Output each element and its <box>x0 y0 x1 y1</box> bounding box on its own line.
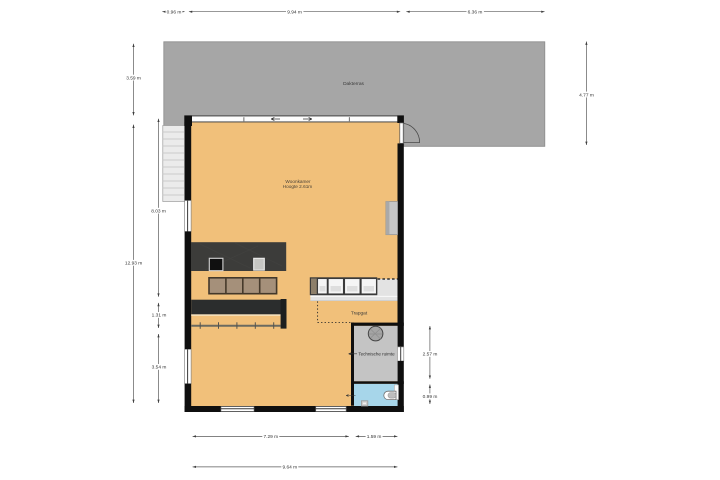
svg-text:2.57 m: 2.57 m <box>423 352 438 358</box>
svg-text:12.93 m: 12.93 m <box>125 261 142 267</box>
svg-text:6.36 m: 6.36 m <box>468 10 483 16</box>
svg-text:Dakterras: Dakterras <box>343 81 364 87</box>
svg-text:7.29 m: 7.29 m <box>263 434 278 440</box>
svg-text:1.59 m: 1.59 m <box>367 434 382 440</box>
svg-text:3.59 m: 3.59 m <box>126 75 141 81</box>
svg-text:8.03 m: 8.03 m <box>151 209 166 215</box>
svg-text:9.64 m: 9.64 m <box>282 465 297 471</box>
svg-text:1.31 m: 1.31 m <box>152 313 167 319</box>
svg-text:Trapgat: Trapgat <box>351 310 368 316</box>
svg-text:0.96 m: 0.96 m <box>167 10 182 16</box>
svg-text:9.94 m: 9.94 m <box>287 10 302 16</box>
svg-text:Hoogte 2.61m: Hoogte 2.61m <box>283 184 313 189</box>
svg-text:0.99 m: 0.99 m <box>423 394 438 400</box>
svg-text:3.54 m: 3.54 m <box>152 365 167 371</box>
svg-text:4.77 m: 4.77 m <box>579 92 594 98</box>
svg-text:Technische ruimte: Technische ruimte <box>358 352 395 357</box>
